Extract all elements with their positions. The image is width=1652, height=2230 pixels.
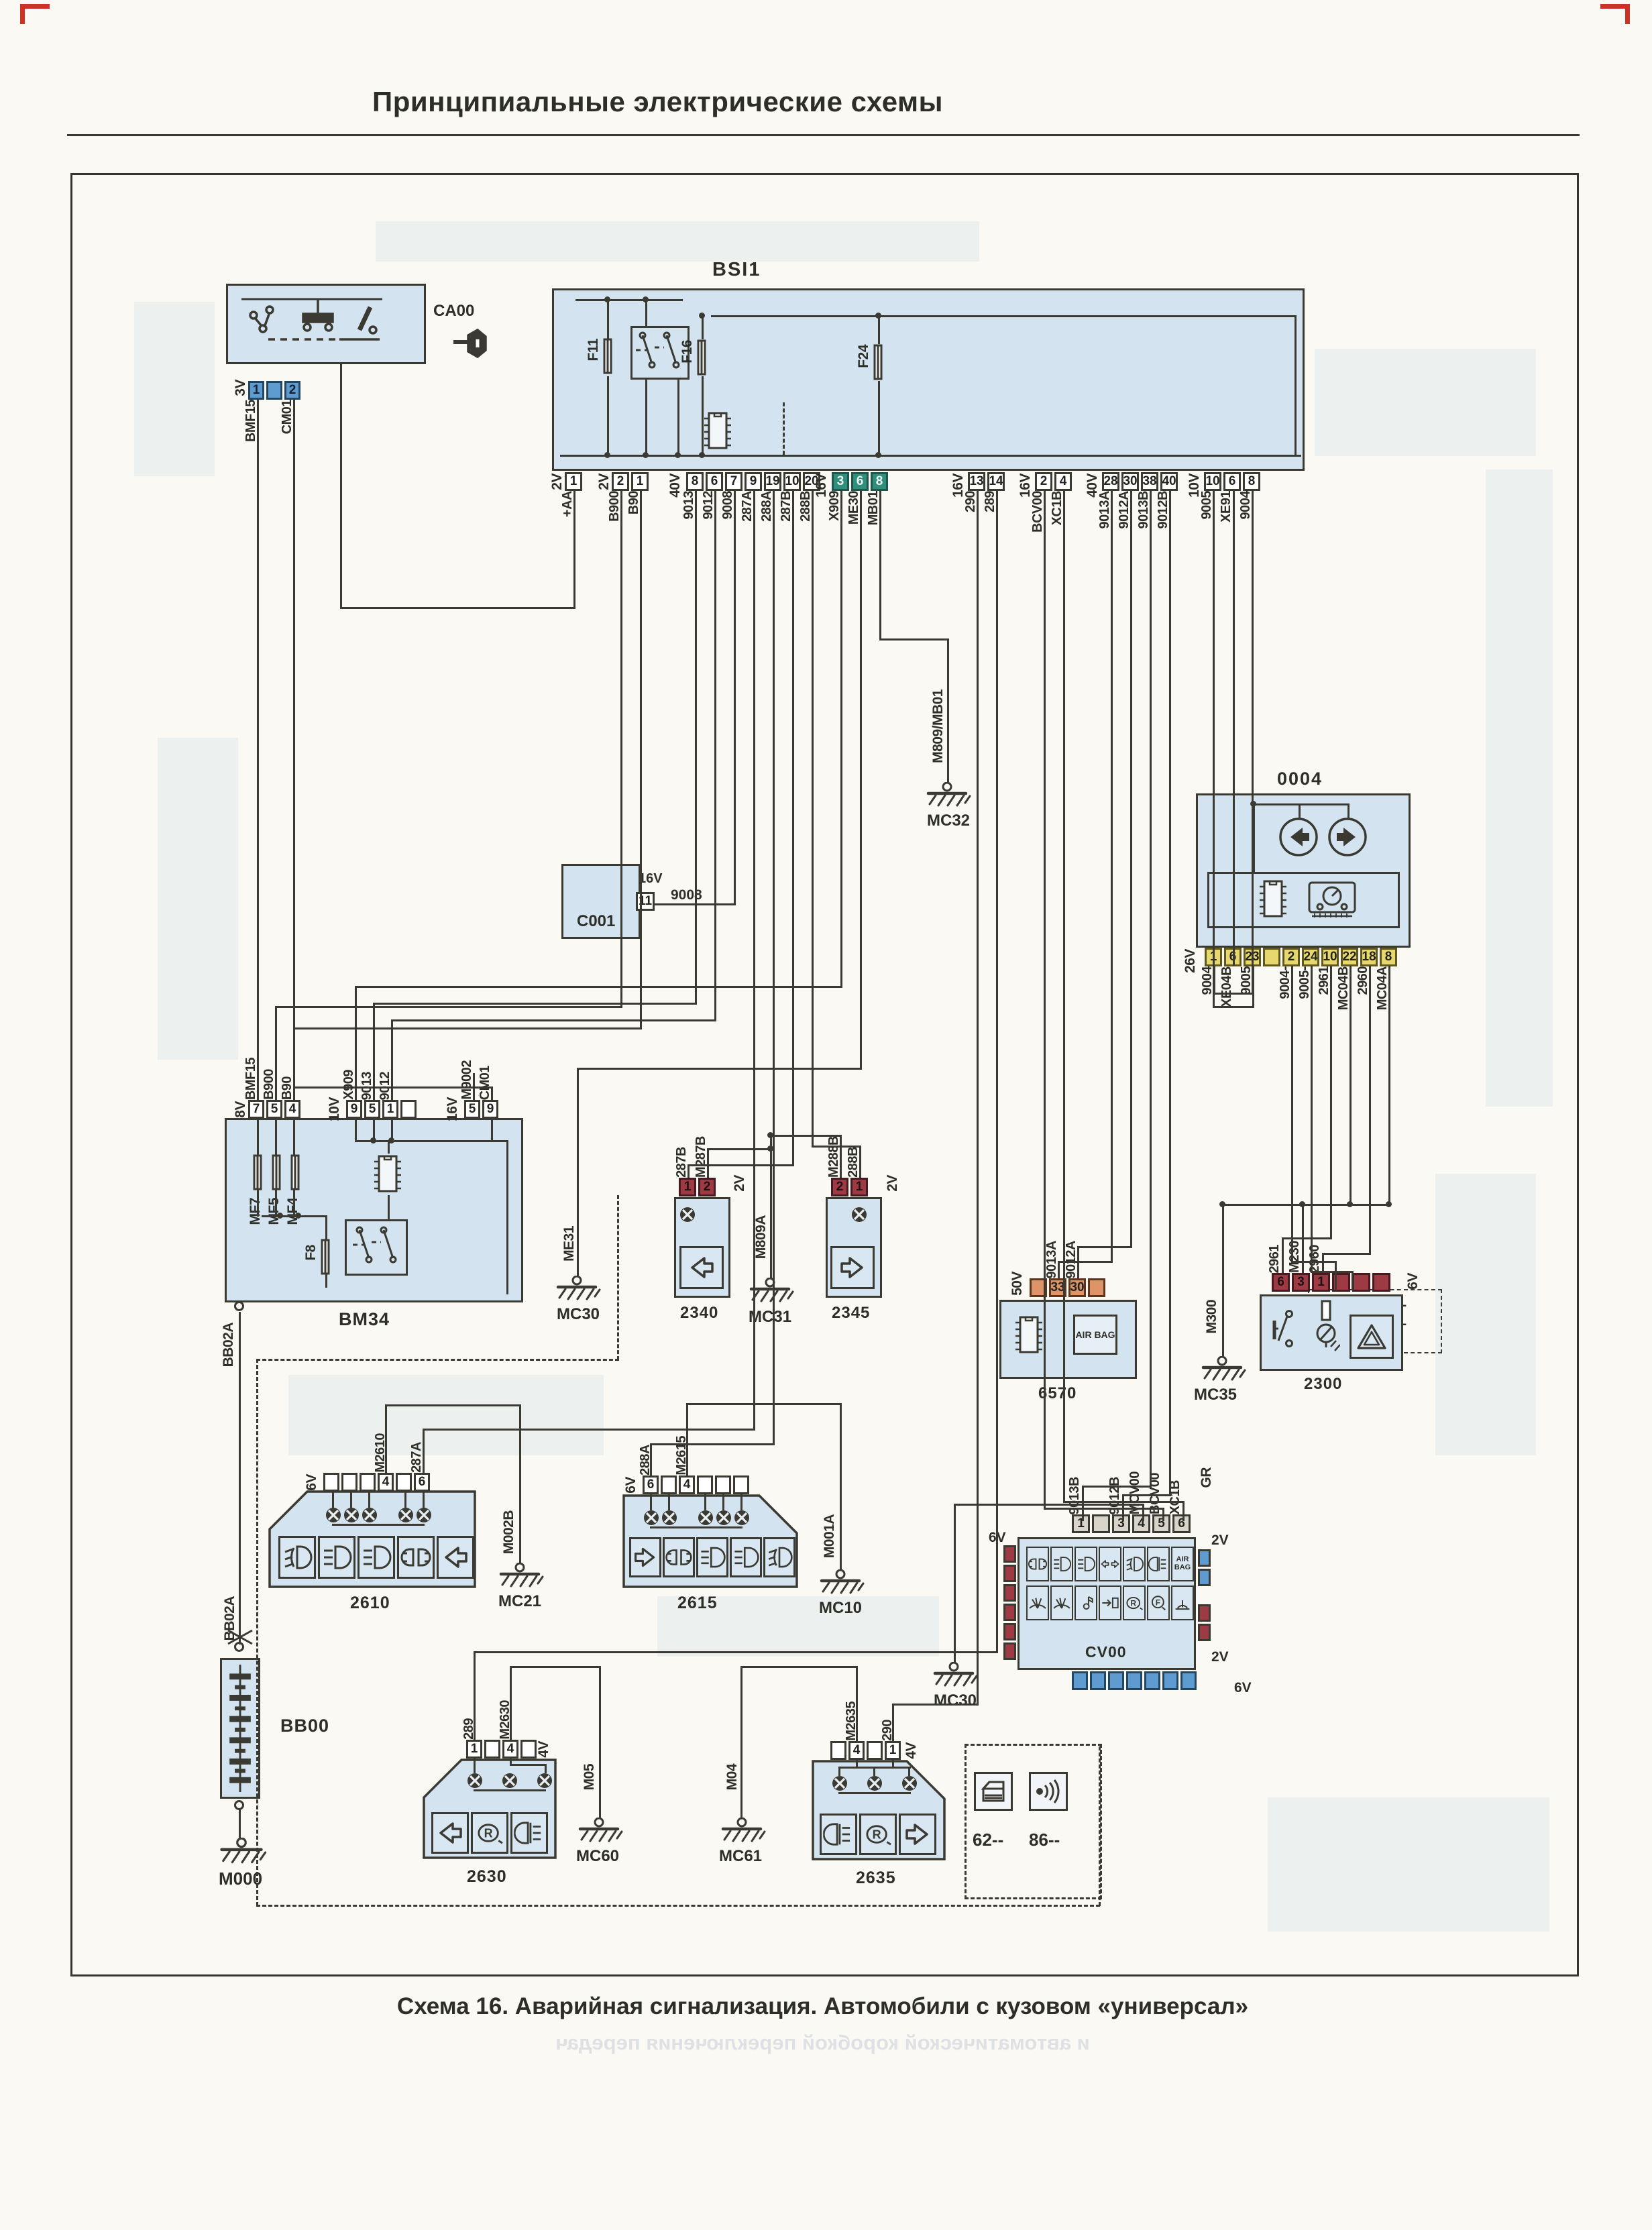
fuse-icon: [320, 1238, 331, 1276]
turn-right-icon: [629, 1537, 661, 1577]
wire-label: XE04B: [1220, 966, 1237, 1007]
wire: [275, 1006, 277, 1100]
wire: [510, 1764, 547, 1766]
wire: [1369, 966, 1371, 1253]
pin: 40: [1160, 472, 1178, 491]
ground-label: MC30: [934, 1693, 977, 1709]
connector-type: 2V: [550, 473, 564, 490]
pin: 28: [1102, 472, 1119, 491]
high-beam-icon: [730, 1537, 762, 1577]
pin: [1372, 1273, 1390, 1292]
airbag-icon: AIR BAG: [1073, 1315, 1117, 1355]
pin: 5: [266, 1100, 282, 1119]
bulb-icon: [397, 1506, 415, 1524]
fuse-label: F24: [857, 345, 871, 368]
wire: [840, 490, 842, 986]
turn-signals-icon: [1099, 1547, 1121, 1581]
wire: [702, 315, 704, 339]
wire-label: BB02A: [221, 1323, 235, 1367]
rear-fog-icon: [510, 1812, 548, 1854]
fuse-label: MF5: [267, 1198, 281, 1225]
wire: [1213, 966, 1215, 993]
wire-label: M2630: [498, 1700, 514, 1740]
pin: [1003, 1545, 1016, 1563]
pin: 30: [1068, 1278, 1086, 1297]
pin: 4: [284, 1100, 300, 1119]
wire: [293, 1027, 642, 1029]
wire: [1252, 490, 1254, 993]
c001-connector: 11: [636, 892, 655, 911]
pin: 1: [382, 1100, 398, 1119]
wire: [740, 1666, 857, 1668]
wire: [332, 1524, 425, 1526]
pin: 24: [1302, 948, 1319, 966]
wire: [770, 1135, 842, 1137]
wire-label: 288A: [760, 491, 777, 522]
wire: [1253, 803, 1350, 805]
junction-dot: [699, 452, 705, 458]
pin: 2: [831, 1178, 848, 1196]
figure-caption: Схема 16. Аварийная сигнализация. Автомо…: [70, 1993, 1575, 2020]
wire: [607, 299, 609, 339]
junction-dot: [388, 1137, 394, 1144]
wire: [325, 1215, 327, 1239]
pin: 4: [679, 1475, 695, 1494]
wire: [474, 1789, 546, 1791]
pin: 8: [1380, 948, 1397, 966]
junction-dot: [295, 1213, 301, 1219]
pin: [1198, 1624, 1211, 1641]
pin: 8: [871, 472, 888, 491]
c001-label: C001: [577, 913, 615, 930]
wire: [711, 315, 1296, 317]
bulb-icon: [715, 1509, 732, 1526]
wire: [650, 1443, 775, 1445]
fuse-icon: [271, 1154, 282, 1191]
wire: [1058, 1261, 1060, 1278]
wire: [404, 1490, 406, 1508]
wire: [1213, 490, 1215, 1006]
wire: [1182, 1501, 1185, 1521]
pin: 6: [414, 1473, 430, 1492]
wire-label: 287B: [675, 1147, 692, 1178]
wire-label: 9012A: [1117, 491, 1135, 528]
wire: [1111, 490, 1113, 1261]
seat-icon: [1171, 1585, 1194, 1620]
wire-label: BCV00: [1031, 491, 1048, 533]
wire: [654, 903, 736, 905]
cv00-label: CV00: [1085, 1644, 1127, 1660]
pin: [1003, 1604, 1016, 1621]
lamp2345-connector: M288B288B 21: [831, 1111, 868, 1196]
wire: [239, 1809, 241, 1838]
position-lamps-icon: [1026, 1547, 1049, 1581]
pin: 18: [1360, 948, 1378, 966]
pin: [1108, 1671, 1124, 1690]
wire: [1295, 315, 1297, 455]
wire: [1122, 1494, 1124, 1521]
wire: [838, 1792, 911, 1794]
wire: [355, 1140, 508, 1142]
wire: [620, 490, 622, 1006]
wire: [1233, 490, 1235, 966]
wire: [1347, 803, 1350, 820]
connector-type: 50V: [1010, 1272, 1024, 1296]
wire: [577, 1068, 862, 1070]
fuse-icon: [873, 343, 883, 381]
wire-label: M287B: [694, 1136, 712, 1178]
wire: [947, 638, 949, 782]
trailer-icon: [1099, 1585, 1121, 1620]
pin: 2: [1282, 948, 1300, 966]
pin: 1: [679, 1178, 696, 1196]
legend-item: 86--: [1029, 1831, 1060, 1848]
wire: [686, 1403, 842, 1405]
pin: [1088, 1278, 1105, 1297]
wire: [686, 1403, 688, 1475]
pin: [1352, 1273, 1370, 1292]
junction-dot: [767, 1146, 773, 1152]
pin: 10: [1321, 948, 1339, 966]
connector-type: 2V: [1211, 1533, 1229, 1547]
legend-item: 62--: [973, 1831, 1003, 1848]
wire: [275, 1190, 277, 1217]
front-fog-icon: [763, 1537, 795, 1577]
wire: [1162, 1508, 1164, 1521]
bulb-icon: [733, 1509, 751, 1526]
wire: [1150, 490, 1152, 1486]
wire-label: MC04A: [1376, 966, 1393, 1010]
wire: [473, 1073, 475, 1100]
lamp2610-label: 2610: [350, 1595, 390, 1612]
wire-label: 9004: [1239, 491, 1256, 520]
wire: [423, 1490, 425, 1508]
wire-label: ME30: [847, 491, 865, 524]
wire-label: MB01: [867, 491, 884, 525]
lamp2345-label: 2345: [832, 1305, 870, 1321]
wire-label: +AA: [561, 491, 578, 517]
lamp2635-label: 2635: [856, 1870, 896, 1887]
connector-type: 10V: [327, 1097, 341, 1121]
airbag-text: AIR BAG: [1075, 1330, 1115, 1340]
wire: [892, 1704, 894, 1741]
pin: [520, 1740, 537, 1759]
wire: [1335, 1261, 1337, 1290]
ground-label: MC60: [576, 1848, 619, 1864]
pin: [266, 381, 282, 400]
pin: 4: [1054, 472, 1072, 491]
pin: 1: [1072, 1514, 1090, 1533]
wire: [1311, 1271, 1354, 1273]
wire: [293, 1118, 295, 1155]
pin: [715, 1475, 731, 1494]
wire: [996, 490, 998, 1651]
ic-chip-icon: [1014, 1313, 1044, 1356]
wire: [650, 1526, 742, 1528]
bulb-icon: [866, 1775, 883, 1792]
pin: [1198, 1604, 1211, 1622]
wire: [650, 1443, 652, 1475]
bsi-conn-16v-b: 24 BCV00XC1B: [1035, 472, 1072, 566]
bulb-icon: [361, 1506, 378, 1524]
pin: [733, 1475, 749, 1494]
pin: [1162, 1671, 1178, 1690]
position-lamps-icon: [663, 1537, 695, 1577]
wire: [1291, 1261, 1337, 1263]
low-beam-icon: [696, 1537, 728, 1577]
pin: [1003, 1565, 1016, 1582]
wire-label: ME31: [562, 1226, 576, 1262]
pin: 10: [1204, 472, 1221, 491]
pin: 1: [248, 381, 264, 400]
wire: [1063, 490, 1065, 1501]
wire: [687, 1164, 690, 1178]
wire-label: GR: [1199, 1467, 1213, 1488]
wire: [474, 1651, 476, 1740]
wire: [577, 1068, 579, 1276]
pin: [1144, 1671, 1160, 1690]
wire-label: 9004: [1201, 966, 1218, 995]
pin: [1126, 1671, 1142, 1690]
turn-left-icon: [431, 1812, 469, 1854]
wire: [1044, 1508, 1164, 1510]
wire: [740, 1666, 742, 1818]
pin: 30: [1121, 472, 1139, 491]
pin: 6: [706, 472, 723, 491]
connector-type: 26V: [1183, 949, 1197, 973]
cluster-inner-box: [1207, 872, 1400, 928]
wire: [325, 1273, 327, 1288]
pin: 2: [1035, 472, 1052, 491]
wire: [575, 299, 683, 301]
bsi-conn-2v-b: 21 B900B90: [612, 472, 649, 566]
wire: [560, 455, 1301, 457]
wire: [859, 1146, 861, 1178]
wire: [954, 1504, 1144, 1506]
door-icon: [974, 1772, 1013, 1811]
junction-dot: [699, 313, 705, 319]
pin: [1263, 948, 1280, 966]
pin: [323, 1473, 339, 1492]
pin: 8: [686, 472, 704, 491]
ground-label: MC30: [557, 1306, 600, 1323]
lamp2615-connector: 288AM2615 64: [643, 1408, 749, 1494]
switch-icon: [1269, 1304, 1300, 1358]
ic-chip-icon: [1258, 877, 1288, 920]
pin: [1180, 1671, 1197, 1690]
wire: [256, 1359, 619, 1361]
wire: [677, 378, 679, 455]
wire: [1099, 1746, 1101, 1906]
pin: [360, 1473, 376, 1492]
ground-icon: [718, 1818, 766, 1846]
wire-label: M2610: [374, 1433, 390, 1473]
bm34-label: BM34: [339, 1311, 390, 1329]
wire: [256, 1905, 1100, 1907]
wire-label: M002B: [502, 1510, 516, 1554]
ic-chip-icon: [703, 409, 732, 452]
wire-label: M001A: [822, 1514, 836, 1558]
wire: [373, 1003, 697, 1005]
gauge-icon: [1307, 880, 1358, 922]
ignition-contacts-icon: [228, 287, 423, 357]
junction-dot: [643, 296, 649, 302]
wire: [293, 1027, 295, 1100]
wire: [687, 1164, 794, 1166]
key-icon: [451, 326, 488, 361]
bsi-conn-40v-b: 28303840 9013A9012A9013B9012B: [1102, 472, 1178, 566]
ground-icon: [930, 1662, 978, 1690]
wire: [1311, 966, 1313, 1271]
connector-type: 8V: [233, 1101, 247, 1118]
pin: 1: [850, 1178, 868, 1196]
wire: [1388, 966, 1390, 1204]
turn-left-indicator-icon: [1277, 816, 1320, 858]
wire: [773, 490, 775, 1443]
wire-label: 2960: [1356, 966, 1374, 995]
fuse-icon: [602, 337, 613, 375]
terminal-ring: [234, 1301, 244, 1311]
bulb-icon: [643, 1509, 660, 1526]
wire: [707, 1148, 709, 1178]
bsi-conn-16v-a: 1314 290289: [968, 472, 1005, 566]
wire-label: M2635: [844, 1702, 861, 1741]
cv00-bottom-connector: [1072, 1671, 1197, 1690]
connector-type: 6V: [305, 1474, 319, 1491]
fuse-icon: [252, 1154, 263, 1191]
airbag-icon: AIR BAG: [1171, 1547, 1194, 1581]
relay-contacts-icon: [347, 1221, 406, 1274]
connector-type: 16V: [445, 1097, 459, 1121]
cluster-label: 0004: [1277, 770, 1323, 788]
pin: 1: [885, 1741, 901, 1760]
lamp2610-connector: M2610287A 46: [323, 1406, 430, 1492]
wire: [740, 1493, 742, 1510]
lamp2340-connector: 287BM287B 12: [679, 1111, 716, 1196]
print-mark: [1625, 4, 1630, 24]
wire: [704, 1493, 706, 1510]
pin: 7: [248, 1100, 264, 1119]
wire: [239, 1312, 241, 1644]
wire-label: 9005-: [1298, 966, 1315, 999]
wire: [1299, 803, 1301, 820]
wire-label: 9005: [1240, 966, 1257, 995]
pin: 4: [848, 1741, 865, 1760]
connector-type: 3V: [233, 380, 247, 396]
wire-label: 9008: [671, 888, 702, 902]
rear-fog-icon: [820, 1814, 857, 1855]
bulb-icon: [661, 1509, 678, 1526]
pin: 19: [764, 472, 781, 491]
junction-dot: [277, 1213, 283, 1219]
wire: [373, 1003, 375, 1100]
wire: [1077, 1246, 1079, 1278]
wire: [879, 490, 881, 638]
fuse-icon: [290, 1154, 300, 1191]
front-fog-icon: [278, 1536, 316, 1579]
pin: [1003, 1623, 1016, 1640]
wire-label: M809A: [754, 1215, 768, 1259]
turn-left-icon: [437, 1536, 474, 1579]
wire: [275, 1006, 622, 1008]
connector-type: 4V: [537, 1741, 551, 1758]
wire: [275, 1118, 277, 1155]
wire-label: 289: [462, 1718, 478, 1740]
wire: [668, 1493, 670, 1510]
title-rule: [67, 134, 1580, 136]
reverse-lamp-icon: [471, 1812, 508, 1854]
wire: [1282, 1237, 1284, 1273]
connector-type: 6V: [1406, 1273, 1420, 1290]
legend-box: [965, 1744, 1102, 1899]
wire: [355, 986, 842, 988]
pin: 7: [725, 472, 742, 491]
ground-icon: [1198, 1356, 1246, 1384]
ground-label: MC61: [719, 1848, 762, 1864]
wire: [491, 1118, 493, 1140]
wire-label: 290: [964, 491, 981, 512]
pin: 6: [1223, 472, 1241, 491]
wire: [491, 1086, 493, 1100]
wire: [599, 1666, 601, 1818]
bb00-label: BB00: [280, 1717, 329, 1735]
pin: 3: [1292, 1273, 1310, 1292]
washer-icon: [1050, 1585, 1073, 1620]
wire: [1282, 1237, 1332, 1239]
cv00-right-top-connector: [1198, 1549, 1211, 1586]
wire: [1044, 490, 1046, 1508]
low-beam-icon: [318, 1536, 355, 1579]
pin: [396, 1473, 412, 1492]
wire: [695, 490, 697, 1003]
wire: [1222, 1204, 1224, 1356]
bulb-icon: [325, 1506, 342, 1524]
bulb-icon: [679, 1206, 696, 1223]
wire: [355, 986, 357, 1100]
connector-type: 16V: [814, 473, 828, 498]
reverse-lamp-icon: [859, 1814, 897, 1855]
connector-type: 2V: [732, 1175, 747, 1192]
wire: [1213, 1006, 1254, 1008]
wire-label: 288B: [846, 1147, 864, 1178]
wire-label: 287B: [779, 491, 797, 522]
lamp2630-connector: 289M2630 14: [466, 1673, 537, 1759]
wire: [1082, 1486, 1152, 1488]
wire: [1222, 1204, 1390, 1206]
wire: [368, 1490, 370, 1508]
bulb-icon: [697, 1509, 714, 1526]
wire-label: 9013A: [1045, 1241, 1062, 1278]
wire-label: 287A: [740, 491, 758, 522]
wire: [340, 364, 342, 607]
connector-type: 6V: [1234, 1681, 1252, 1695]
pin: [1198, 1549, 1211, 1567]
bm34-conn-16v: M9002CM01 59: [464, 1033, 498, 1119]
pin: [830, 1741, 846, 1760]
lamp2635-connector: M2635290 41: [830, 1674, 901, 1760]
wire: [878, 381, 880, 455]
pin: 6: [1172, 1514, 1191, 1533]
wire: [1352, 1271, 1354, 1290]
wire: [707, 1148, 772, 1150]
pin: 6: [643, 1475, 659, 1494]
junction-dot: [1219, 1201, 1225, 1207]
cv00-left-connector: [1003, 1545, 1016, 1660]
fuse-label: F16: [680, 340, 694, 364]
lamp-led-icon: [1313, 1298, 1340, 1360]
low-beam-icon: [1050, 1547, 1073, 1581]
bulb-icon: [831, 1775, 848, 1792]
